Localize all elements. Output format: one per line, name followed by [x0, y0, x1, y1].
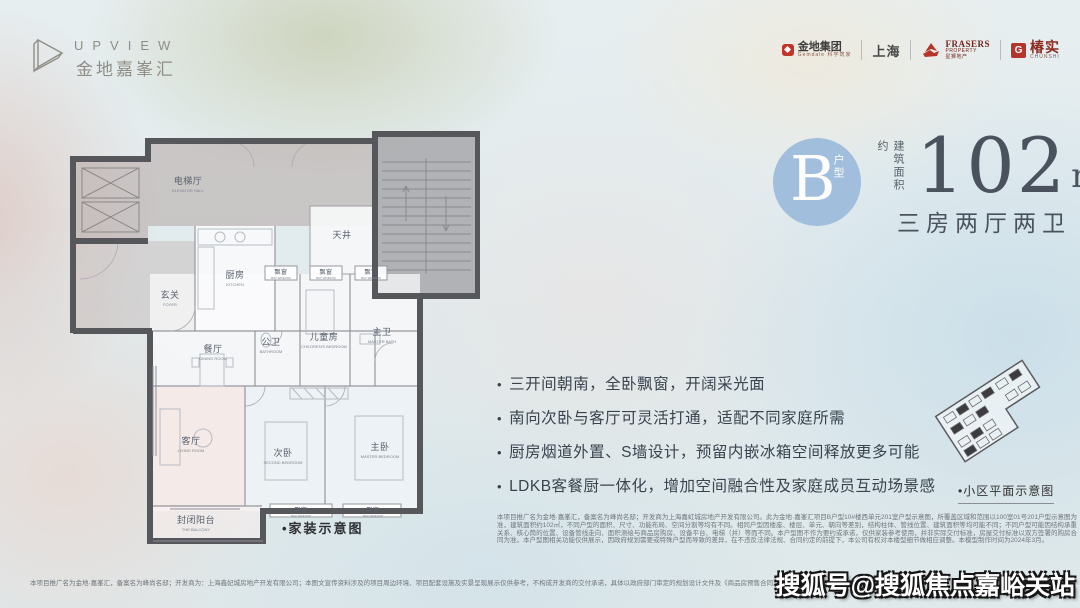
shanghai-label: 上海 — [872, 41, 900, 60]
room-label: 主卫 — [372, 326, 391, 337]
gemdale-icon — [782, 44, 794, 56]
room-label-en: FOYER — [163, 302, 177, 307]
room-label: 玄关 — [160, 289, 179, 300]
room-label-en: BAY WINDOW — [271, 276, 291, 280]
room-label: 飘窗 — [274, 268, 287, 276]
unit-type-letter: B — [790, 142, 836, 215]
unit-type-label: 户型 — [830, 154, 846, 180]
room-label-en: LIVING ROOM — [178, 448, 205, 453]
room-label-en: MASTER BEDROOM — [361, 454, 399, 459]
room-label-en: KITCHEN — [226, 282, 244, 287]
unit-type-badge: B 户型 — [773, 138, 861, 226]
unit-area: 建筑面积约 102 m2 — [874, 130, 1080, 204]
siteplan-drawing — [923, 370, 1077, 492]
room-label: 飘窗 — [364, 268, 377, 276]
partner-logo-strip: 金地集团 Gemdale 科学筑家 上海 FRASERS PROPERTY 星狮… — [782, 40, 1060, 60]
feature-item: 南向次卧与客厅可灵活打通，适配不同家庭所需 — [497, 406, 936, 428]
siteplan-caption: •小区平面示意图 — [958, 482, 1054, 504]
feature-item: LDKB客餐厨一体化，增加空间融合性及家庭成员互动场景感 — [497, 474, 936, 496]
room-label-en: DINING ROOM — [199, 356, 227, 361]
feature-item: 三开间朝南，全卧飘窗，开阔采光面 — [497, 372, 936, 394]
room-label-en: BAY WINDOW — [363, 514, 383, 518]
chunshi-name: 椿实 — [1030, 40, 1060, 55]
room-label: 次卧 — [273, 447, 292, 458]
brand-name: UPVIEW — [74, 38, 179, 53]
room-label: 主卧 — [370, 441, 389, 452]
room-label-en: THE BALCONY — [182, 527, 211, 532]
frasers-mountain-icon — [921, 42, 941, 58]
room-label-en: MASTER BATH — [368, 339, 396, 344]
room-label: 电梯厅 — [174, 175, 203, 186]
room-label: 公卫 — [261, 337, 280, 347]
room-label: 封闭阳台 — [177, 514, 215, 525]
chunshi-icon: G — [1011, 43, 1026, 58]
chunshi-sub: CHUNSHI — [1030, 55, 1060, 60]
area-unit: m2 — [1071, 156, 1080, 196]
room-label-en: ELEVATOR HALL — [172, 188, 205, 193]
gemdale-logo: 金地集团 Gemdale 科学筑家 — [782, 42, 852, 59]
frasers-sub: 星狮地产 — [945, 55, 990, 60]
feature-item: 厨房烟道外置、S墙设计，预留内嵌冰箱空间释放更多可能 — [497, 440, 936, 462]
room-label-en: SECOND BEDROOM — [264, 460, 303, 465]
gemdale-sub: Gemdale 科学筑家 — [798, 53, 852, 58]
sohu-watermark: 搜狐号@搜狐焦点嘉峪关站 — [776, 566, 1075, 602]
room-label: 飘窗 — [319, 268, 332, 276]
room-label: 儿童房 — [310, 331, 339, 342]
disclaimer-text: 本项目推广名为金地·嘉峯汇，备案名为峰尚名邸；开发商为上海嘉虹城房地产开发有限公… — [497, 514, 1077, 545]
room-label: 餐厅 — [203, 343, 222, 354]
brand-block: UPVIEW 金地嘉峯汇 — [30, 28, 230, 84]
area-prefix: 建筑面积约 — [874, 140, 906, 204]
room-label-en: BAY WINDOW — [316, 276, 336, 280]
divider — [861, 40, 862, 60]
room-label: 飘窗 — [294, 506, 307, 514]
divider — [1000, 40, 1001, 60]
room-label-en: CHILDREN'S BEDROOM — [301, 344, 347, 349]
room-label: 客厅 — [181, 435, 200, 446]
area-value: 102 — [916, 130, 1067, 202]
room-label: 厨房 — [225, 269, 244, 280]
feature-list: 三开间朝南，全卧飘窗，开阔采光面 南向次卧与客厅可灵活打通，适配不同家庭所需 厨… — [497, 372, 936, 508]
room-label-en: BAY WINDOW — [361, 276, 381, 280]
floorplan-drawing: 电梯厅ELEVATOR HALL天井厨房KITCHEN玄关FOYER飘窗BAY … — [60, 126, 480, 558]
divider — [910, 40, 911, 60]
frasers-logo: FRASERS PROPERTY 星狮地产 — [921, 40, 990, 60]
upview-play-icon — [32, 34, 70, 76]
floorplan-caption: •家装示意图 — [282, 518, 364, 537]
chunshi-logo: G 椿实 CHUNSHI — [1011, 40, 1060, 60]
room-label-en: BATHROOM — [260, 349, 283, 354]
room-label: 天井 — [332, 229, 351, 240]
unit-layout: 三房两厅两卫 — [897, 204, 1071, 238]
brand-subtitle: 金地嘉峯汇 — [76, 55, 176, 80]
room-label: 飘窗 — [366, 506, 379, 514]
